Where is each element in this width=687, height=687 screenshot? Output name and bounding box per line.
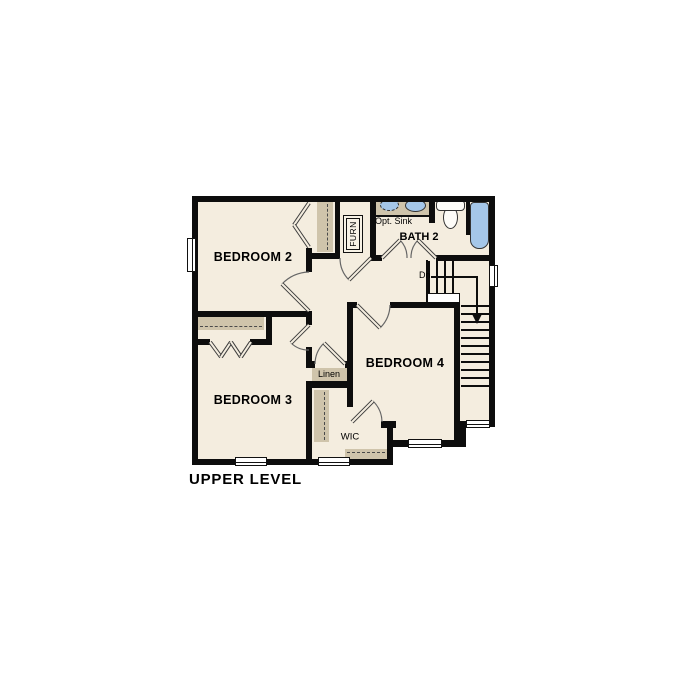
window-pane-line [409, 444, 441, 445]
stair-tread [461, 385, 489, 387]
bedroom3-closet-shelf [198, 317, 264, 330]
wall-furnace-bottom [312, 253, 340, 259]
stair-tread [461, 353, 489, 355]
page-title: UPPER LEVEL [189, 471, 302, 488]
stair-tread [461, 337, 489, 339]
wall-wic-left [306, 388, 312, 459]
wic-label: WIC [341, 432, 359, 443]
furnace-label: FURN [348, 221, 358, 247]
stair-tread [461, 361, 489, 363]
wall-bath-bottom-right [436, 255, 495, 261]
window-wic-bottom [318, 457, 350, 466]
opt-sink-label: Opt. Sink [375, 216, 412, 226]
window-pane-line [319, 462, 349, 463]
wall-bath-bottom-left [370, 255, 382, 261]
bath2-label: BATH 2 [400, 231, 439, 243]
stair-down-path [431, 276, 477, 278]
wall-closet2-right [335, 202, 340, 253]
shelf-dash [327, 204, 328, 250]
wall-bedroom4-top-left [347, 302, 357, 308]
window-bedroom3-bottom [235, 457, 267, 466]
bedroom2-closet-shelf [317, 202, 333, 252]
bedroom3-label: BEDROOM 3 [214, 393, 292, 407]
wall-wic-corner [381, 421, 396, 428]
window-stairs-right [489, 265, 498, 287]
wall-bedroom3-right-jamb [306, 317, 312, 325]
shelf-dash [200, 326, 262, 327]
window-bedroom4-bottom [408, 439, 442, 448]
wall-outer-top [192, 196, 495, 202]
linen-label: Linen [318, 369, 340, 379]
wall-closet3-jamb-left [192, 339, 210, 345]
wall-bedroom4-top-right [390, 302, 460, 308]
window-bedroom2-left [187, 238, 196, 272]
furnace-unit-inner: FURN [346, 218, 360, 250]
window-stairs-bottom [466, 420, 490, 428]
dn-label: Dn [419, 270, 431, 280]
wall-outer-left [192, 196, 198, 465]
wic-shelf-bottom [345, 449, 387, 459]
window-pane-line [192, 239, 193, 271]
wall-linen-top-left [306, 361, 315, 368]
stair-down-path [476, 276, 478, 316]
wall-bedroom2-bottom [192, 311, 312, 317]
window-pane-line [494, 266, 495, 286]
stair-tread [461, 305, 489, 307]
wall-outer-bottom-left [192, 459, 393, 465]
bedroom4-label: BEDROOM 4 [366, 356, 444, 370]
wic-shelf-left [314, 390, 329, 442]
floor-plan: FURN [0, 0, 687, 687]
bedroom2-label: BEDROOM 2 [214, 250, 292, 264]
wall-linen-bottom [306, 381, 353, 388]
wall-bath-left [370, 202, 376, 259]
wall-bedroom2-right [306, 248, 312, 272]
window-pane-line [467, 424, 489, 425]
furnace-unit: FURN [343, 215, 363, 253]
wall-outer-right [489, 196, 495, 427]
wall-bedroom4-left [347, 302, 353, 407]
stair-tread [461, 369, 489, 371]
stair-tread [461, 377, 489, 379]
bathtub [470, 202, 489, 249]
wall-closet3-jamb-right [250, 339, 272, 345]
shelf-dash [347, 452, 385, 453]
wall-vanity-stub [429, 202, 435, 223]
window-pane-line [236, 462, 266, 463]
stair-tread [461, 345, 489, 347]
stair-tread [461, 329, 489, 331]
wall-bedroom4-right [454, 302, 460, 447]
down-arrow-icon [472, 314, 482, 324]
shelf-dash [324, 392, 325, 440]
wall-toilet-tub [466, 202, 470, 235]
wall-bedroom3-right [306, 347, 312, 361]
